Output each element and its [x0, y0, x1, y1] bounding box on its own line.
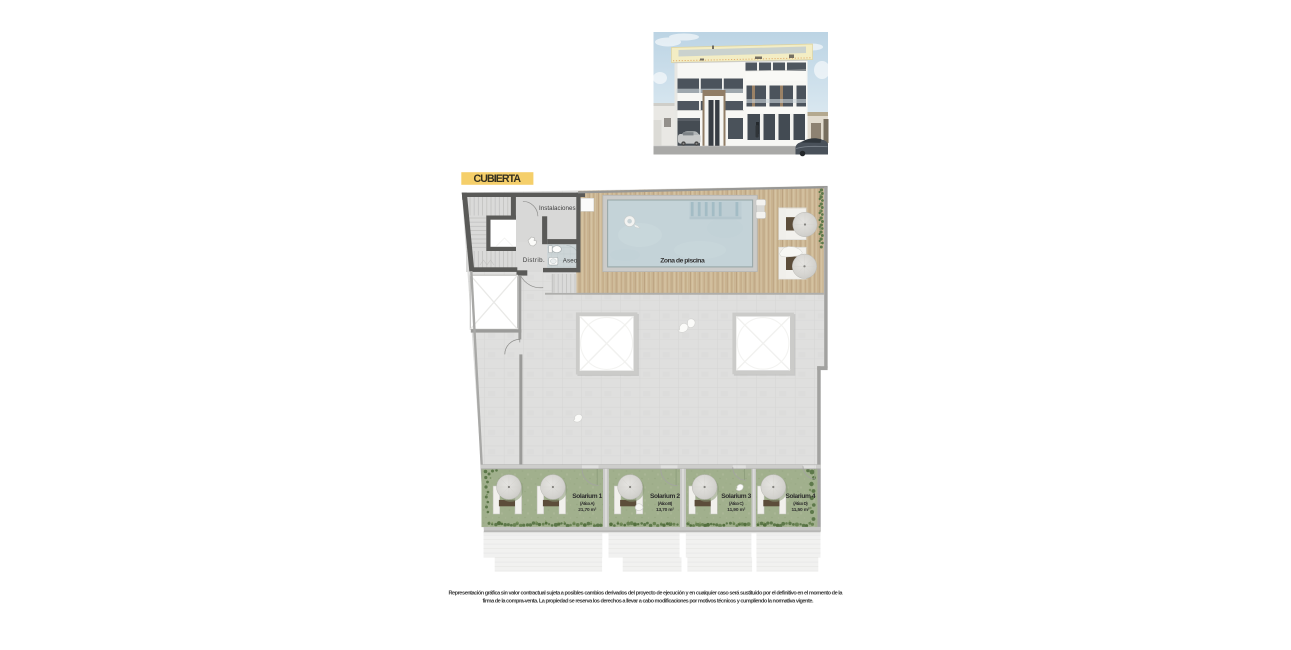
svg-text:Representación gráfica sin val: Representación gráfica sin valor contrac… [449, 590, 844, 596]
svg-text:13,70 m²: 13,70 m² [656, 507, 674, 513]
svg-text:Solarium 1: Solarium 1 [572, 493, 602, 500]
svg-text:Distrib.: Distrib. [523, 257, 545, 264]
svg-text:11,50 m²: 11,50 m² [792, 507, 810, 513]
svg-text:CUBIERTA: CUBIERTA [474, 173, 522, 185]
svg-text:Aseo: Aseo [563, 257, 578, 264]
svg-text:21,70 m²: 21,70 m² [578, 507, 596, 513]
svg-text:Instalaciones: Instalaciones [539, 205, 576, 212]
svg-text:Zona de piscina: Zona de piscina [660, 258, 705, 265]
svg-text:(Ático D): (Ático D) [793, 501, 808, 506]
svg-text:11,90 m²: 11,90 m² [727, 507, 745, 513]
svg-text:(Ático B): (Ático B) [658, 501, 673, 506]
svg-text:Solarium 3: Solarium 3 [721, 493, 751, 500]
svg-text:Solarium 4: Solarium 4 [786, 493, 816, 500]
svg-text:Solarium 2: Solarium 2 [650, 493, 680, 500]
svg-text:(Ático C): (Ático C) [729, 501, 744, 506]
svg-text:firma de la compra-venta. La p: firma de la compra-venta. La propiedad s… [482, 599, 813, 605]
svg-text:(Ático A): (Ático A) [580, 501, 595, 506]
